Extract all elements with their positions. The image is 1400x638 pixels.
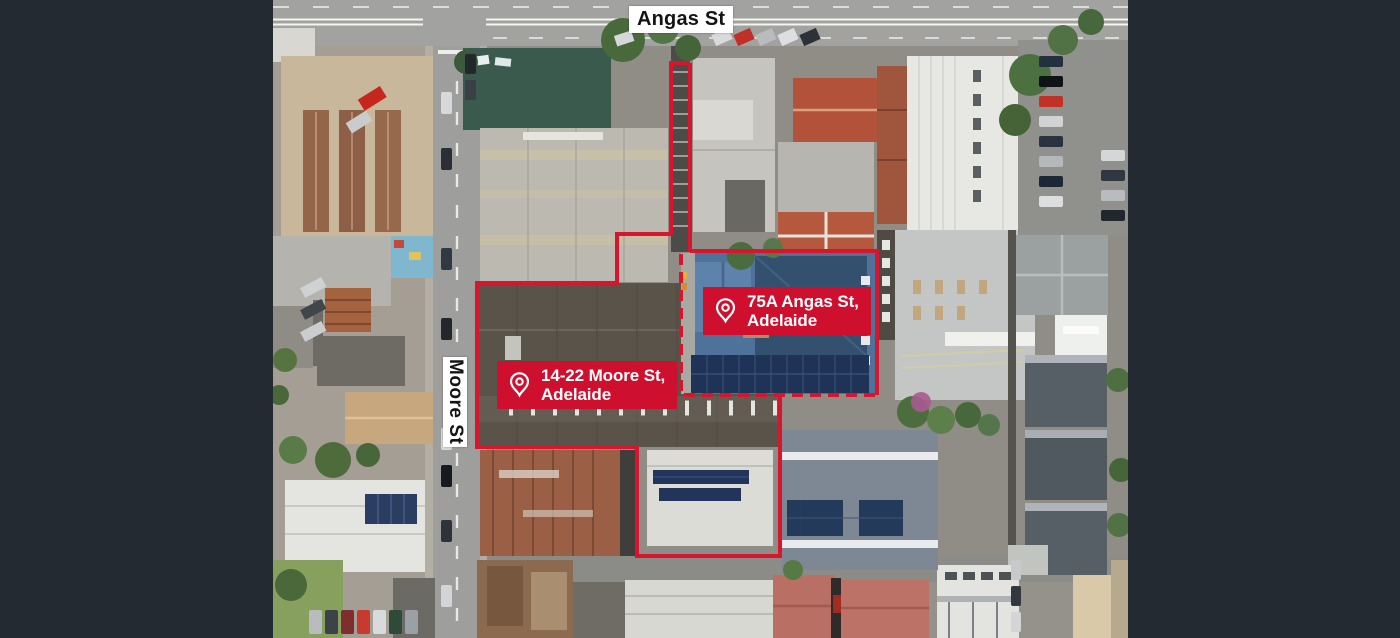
location-pin-icon [507,371,532,400]
street-label-angas: Angas St [629,6,733,33]
aerial-photo: Angas St Moore St 75A Angas St, Adelaide… [273,0,1128,638]
screenshot-stage: Angas St Moore St 75A Angas St, Adelaide… [0,0,1400,638]
badge-text: 14-22 Moore St, Adelaide [541,366,665,404]
aerial-scene [273,0,1128,638]
badge-line2: Adelaide [747,311,859,330]
property-badge-75a-angas: 75A Angas St, Adelaide [703,287,871,335]
street-label-moore: Moore St [443,357,467,447]
badge-line1: 14-22 Moore St, [541,366,665,385]
property-badge-14-22-moore: 14-22 Moore St, Adelaide [497,361,677,409]
badge-line1: 75A Angas St, [747,292,859,311]
badge-line2: Adelaide [541,385,665,404]
badge-text: 75A Angas St, Adelaide [747,292,859,330]
location-pin-icon [713,297,738,326]
